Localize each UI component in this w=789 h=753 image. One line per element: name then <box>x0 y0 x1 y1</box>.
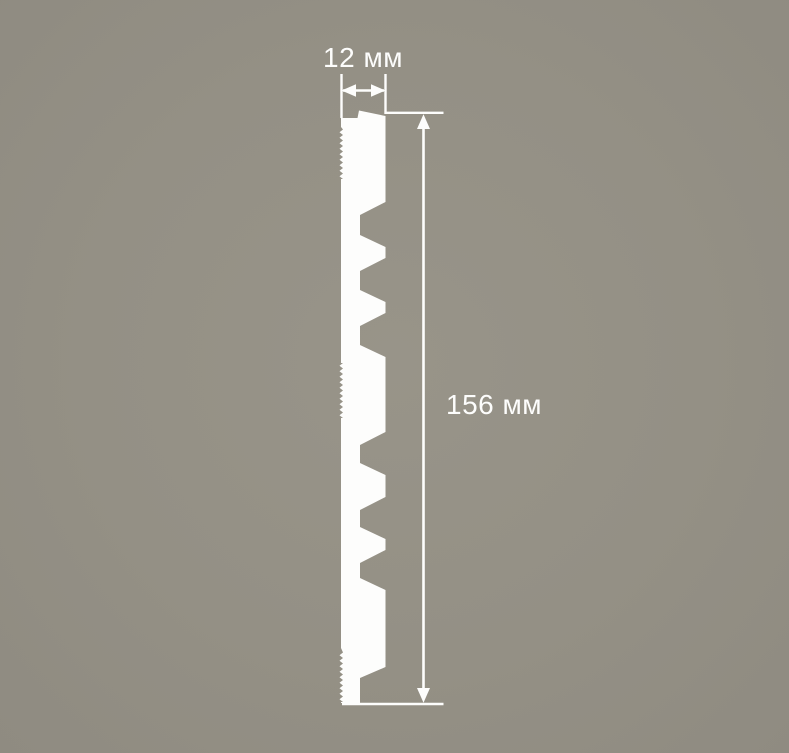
arrowhead-down-icon <box>417 688 430 703</box>
panel-profile-shape <box>340 111 386 704</box>
arrowhead-right-icon <box>371 84 386 96</box>
figure-canvas: 12 мм 156 мм <box>0 0 789 753</box>
arrowhead-up-icon <box>417 114 430 129</box>
height-dimension-label: 156 мм <box>446 389 542 420</box>
width-dimension-label: 12 мм <box>323 42 403 73</box>
profile-drawing: 12 мм 156 мм <box>0 0 789 753</box>
width-dimension: 12 мм <box>323 42 403 118</box>
arrowhead-left-icon <box>342 84 357 96</box>
